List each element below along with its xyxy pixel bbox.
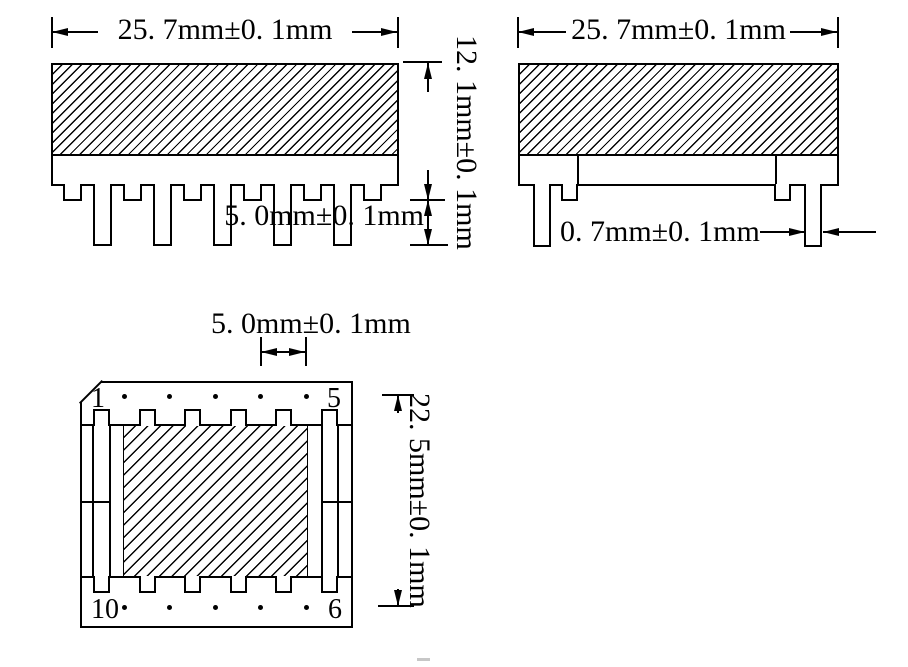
pin-dot xyxy=(122,394,127,399)
bottom-tab xyxy=(275,576,292,593)
extension-tick xyxy=(403,61,442,63)
side-pin-thickness-dimension: 0. 7mm±0. 1mm xyxy=(560,216,760,248)
front-bobbin-base xyxy=(51,154,399,186)
pin-number-5: 5 xyxy=(322,384,346,414)
pin-dot xyxy=(304,394,309,399)
arrowhead-up-icon xyxy=(424,200,432,216)
pin-number-6: 6 xyxy=(323,595,347,625)
extension-tick xyxy=(378,605,414,607)
top-tab xyxy=(230,409,247,426)
side-pin xyxy=(804,184,822,247)
base-divider xyxy=(577,156,579,185)
arrowhead-down-icon xyxy=(424,184,432,200)
pin-dot xyxy=(167,394,172,399)
arrowhead-down-icon xyxy=(394,590,402,606)
top-core-center xyxy=(123,425,308,578)
pin-dot xyxy=(213,605,218,610)
front-stub xyxy=(123,184,142,201)
pin-dot xyxy=(167,605,172,610)
pin-dot xyxy=(258,394,263,399)
arrowhead-right-icon xyxy=(789,228,805,236)
bottom-tab xyxy=(321,576,338,593)
pin-dot xyxy=(122,605,127,610)
flange-divider xyxy=(81,501,110,503)
arrowhead-down-icon xyxy=(424,229,432,245)
bottom-tab xyxy=(230,576,247,593)
top-tab xyxy=(139,409,156,426)
front-core-body xyxy=(51,63,399,156)
arrowhead-up-icon xyxy=(424,63,432,79)
pin-number-10: 10 xyxy=(88,595,122,625)
pin-dot xyxy=(213,394,218,399)
front-height-dimension: 12. 1mm±0. 1mm xyxy=(452,35,482,249)
flange-divider xyxy=(322,501,352,503)
pin-dot xyxy=(304,605,309,610)
front-pin xyxy=(93,184,112,246)
side-stub xyxy=(774,184,791,201)
side-bobbin-base xyxy=(518,154,839,186)
bottom-tab xyxy=(139,576,156,593)
bottom-tab xyxy=(93,576,110,593)
arrowhead-left-icon xyxy=(261,348,277,356)
arrowhead-right-icon xyxy=(289,348,305,356)
bottom-tab xyxy=(184,576,201,593)
side-pin xyxy=(533,184,551,247)
dimension-line xyxy=(397,396,399,413)
side-stub xyxy=(561,184,578,201)
top-pin-pitch-dimension: 5. 0mm±0. 1mm xyxy=(211,308,411,340)
strip-line xyxy=(81,424,352,426)
side-core-body xyxy=(518,63,839,156)
side-width-dimension: 25. 7mm±0. 1mm xyxy=(518,14,839,46)
pin-number-1: 1 xyxy=(86,384,110,414)
front-pin xyxy=(153,184,172,246)
front-stub xyxy=(183,184,202,201)
front-pin-length-dimension: 5. 0mm±0. 1mm xyxy=(222,200,424,232)
top-depth-dimension: 22. 5mm±0. 1mm xyxy=(405,393,435,607)
base-divider xyxy=(775,156,777,185)
pin-dot xyxy=(258,605,263,610)
arrowhead-left-icon xyxy=(823,228,839,236)
strip-line xyxy=(81,576,352,578)
top-tab xyxy=(275,409,292,426)
extension-tick xyxy=(410,244,448,246)
stray-mark xyxy=(417,658,430,661)
front-width-dimension: 25. 7mm±0. 1mm xyxy=(51,14,399,46)
technical-drawing: 25. 7mm±0. 1mm 12. 1mm±0. 1mm 5. 0mm±0. … xyxy=(0,0,908,667)
front-stub xyxy=(63,184,82,201)
top-tab xyxy=(184,409,201,426)
